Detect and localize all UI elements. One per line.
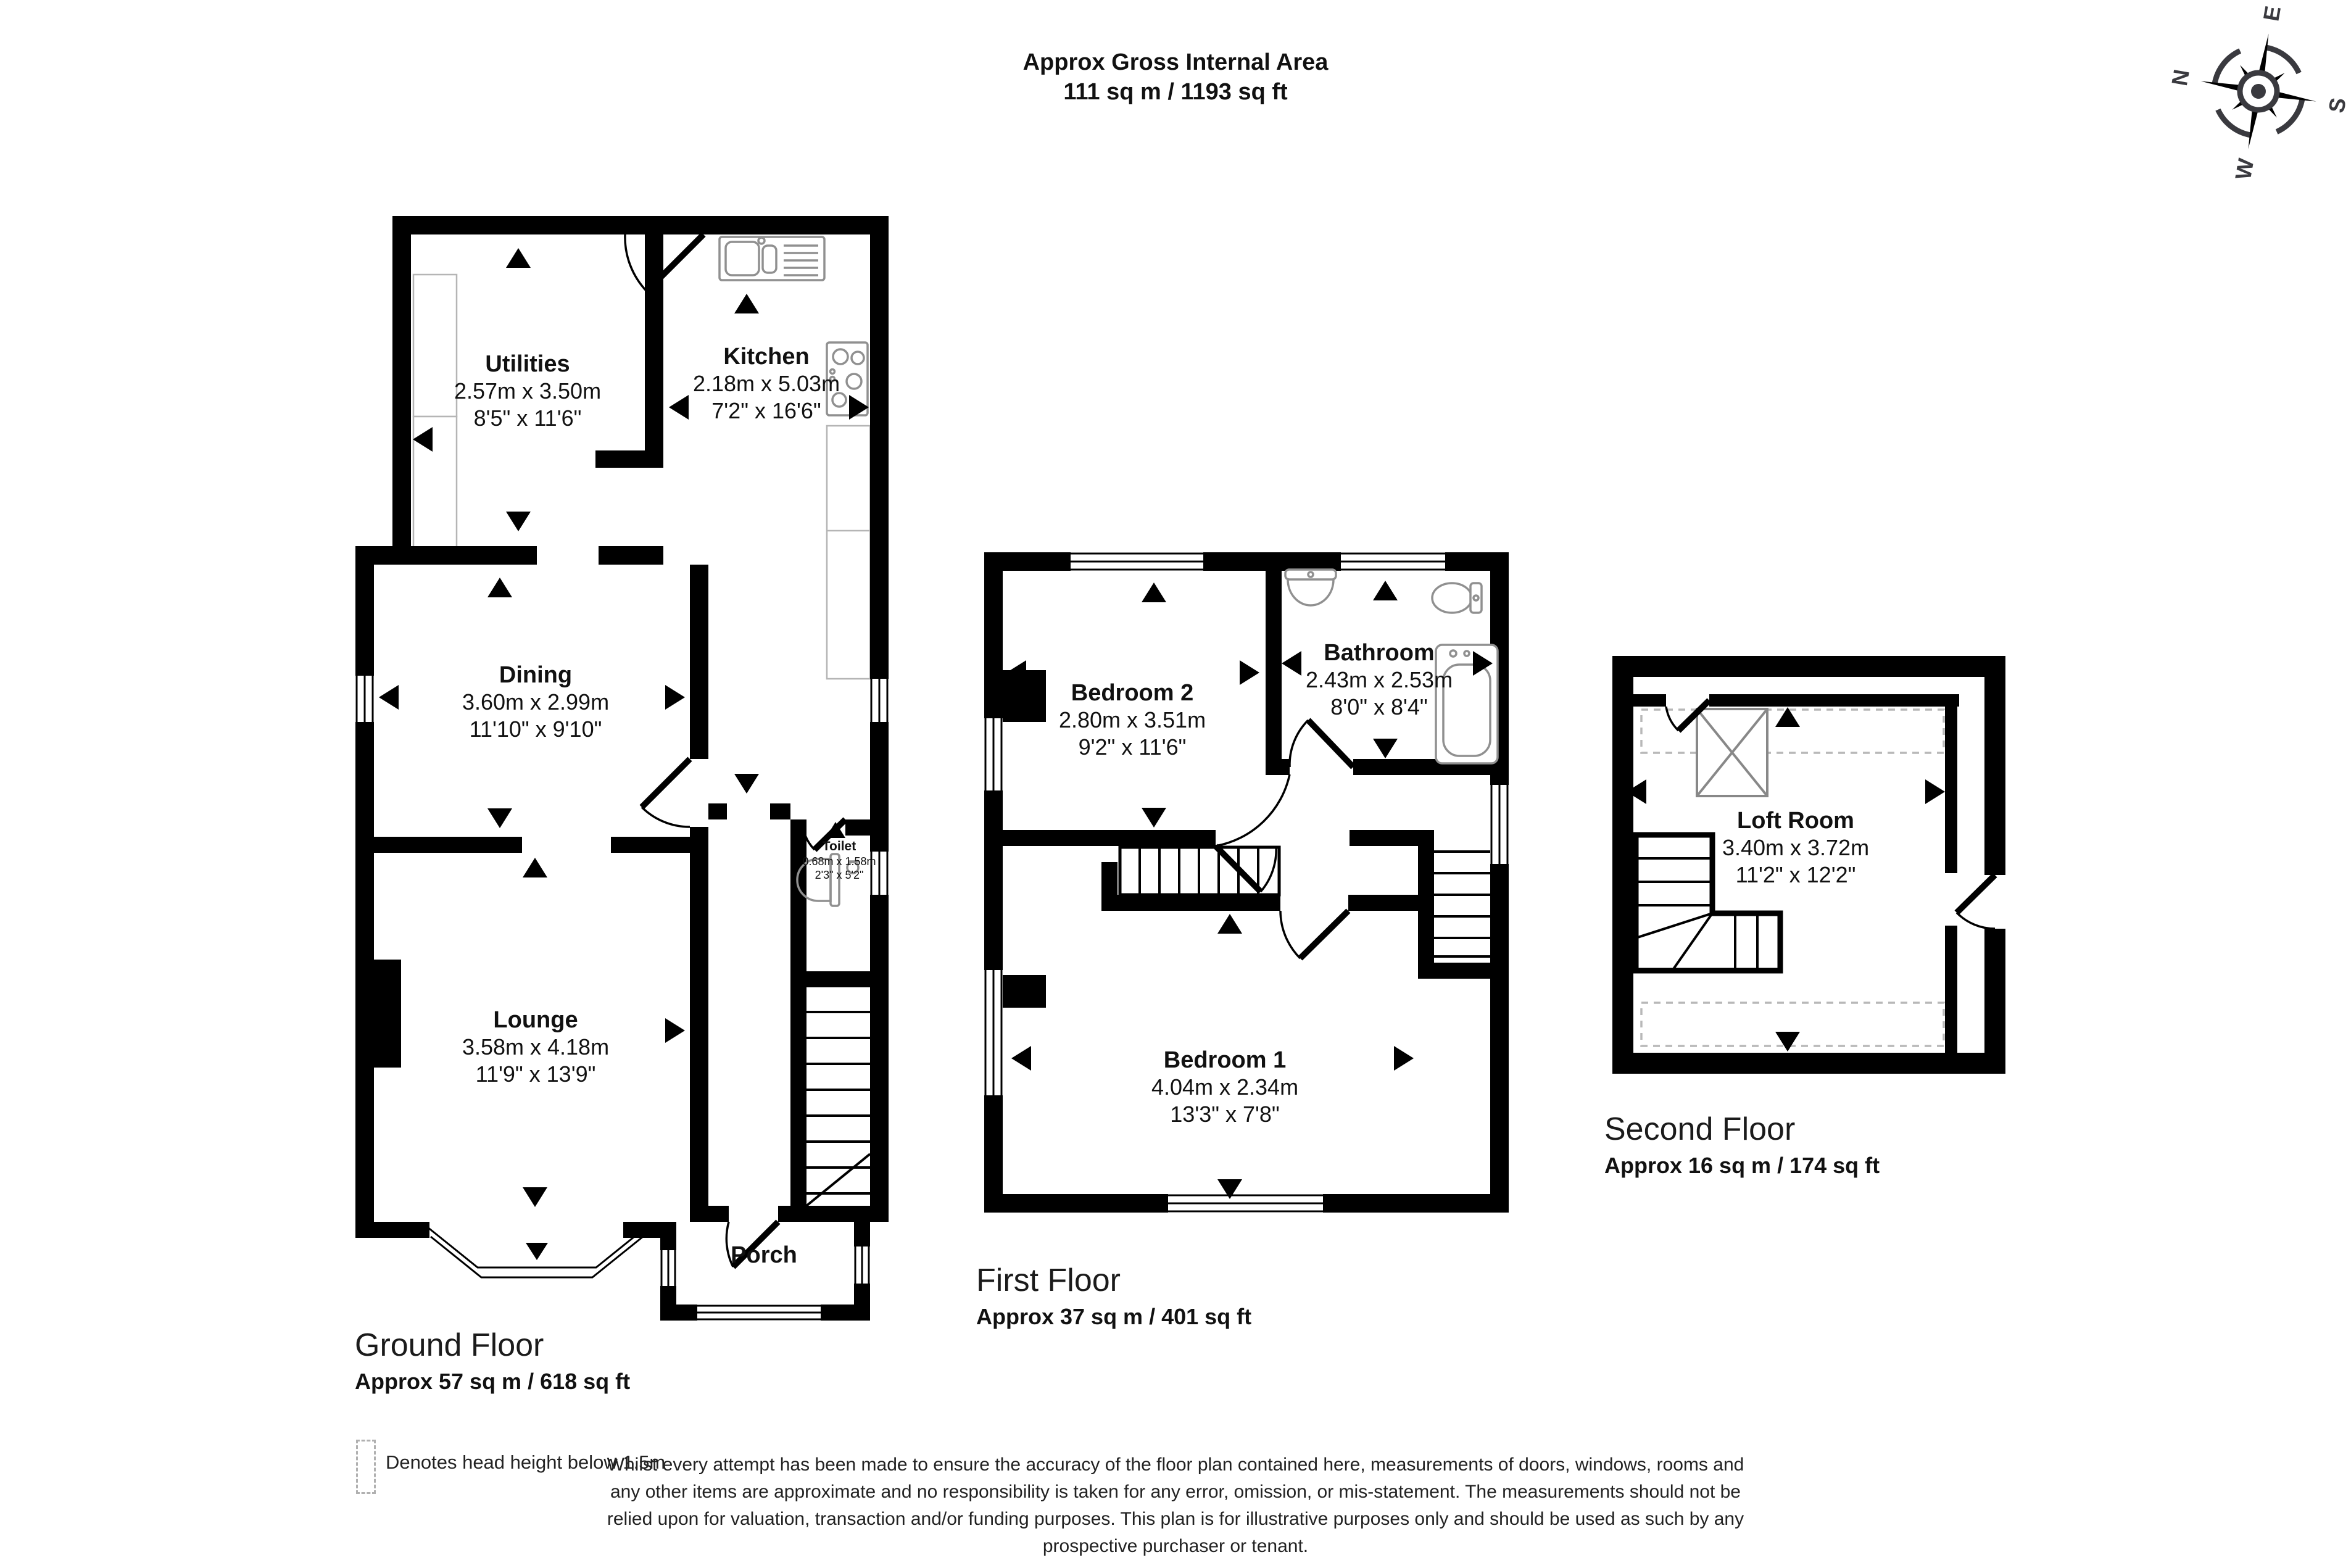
disclaimer-line-1: Whilst every attempt has been made to en… xyxy=(558,1451,1793,1479)
room-label-lounge: Lounge xyxy=(493,1007,578,1033)
bathroom-toilet-icon xyxy=(1432,583,1482,613)
room-imperial-bedroom1: 13'3" x 7'8" xyxy=(1170,1101,1279,1127)
room-imperial-loft: 11'2" x 12'2" xyxy=(1736,862,1856,887)
page-title: Approx Gross Internal Area xyxy=(867,49,1484,76)
room-metric-bedroom1: 4.04m x 2.34m xyxy=(1151,1074,1298,1100)
room-label-loft: Loft Room xyxy=(1737,808,1854,834)
room-label-utilities: Utilities xyxy=(485,351,570,377)
compass-n: N xyxy=(2166,67,2194,88)
room-imperial-lounge: 11'9" x 13'9" xyxy=(476,1061,596,1087)
ground-floor-stairs xyxy=(806,1012,870,1206)
ground-floor-plan: Utilities 2.57m x 3.50m 8'5" x 11'6" Kit… xyxy=(352,210,907,1327)
room-metric-toilet: 0.68m x 1.58m xyxy=(802,855,876,868)
room-metric-dining: 3.60m x 2.99m xyxy=(462,689,609,715)
room-metric-utilities: 2.57m x 3.50m xyxy=(454,378,601,404)
room-imperial-utilities: 8'5" x 11'6" xyxy=(474,405,582,431)
second-floor-area: Approx 16 sq m / 174 sq ft xyxy=(1604,1153,1880,1179)
room-metric-bedroom2: 2.80m x 3.51m xyxy=(1059,707,1206,732)
compass-rose-icon: N E S W xyxy=(2160,0,2351,190)
room-label-toilet: Toilet xyxy=(823,839,856,853)
disclaimer-line-2: any other items are approximate and no r… xyxy=(558,1479,1793,1506)
head-height-legend-icon xyxy=(356,1440,376,1494)
page-subtitle: 111 sq m / 1193 sq ft xyxy=(867,79,1484,106)
room-imperial-bathroom: 8'0" x 8'4" xyxy=(1330,694,1427,720)
compass-e: E xyxy=(2258,4,2286,23)
bathroom-sink-icon xyxy=(1285,570,1336,605)
compass-w: W xyxy=(2230,157,2258,182)
room-imperial-kitchen: 7'2" x 16'6" xyxy=(711,398,821,423)
room-imperial-dining: 11'10" x 9'10" xyxy=(470,716,602,742)
room-metric-bathroom: 2.43m x 2.53m xyxy=(1306,667,1453,692)
skylight-icon xyxy=(1697,709,1767,796)
disclaimer-line-4: prospective purchaser or tenant. xyxy=(558,1533,1793,1560)
utilities-counter xyxy=(413,275,457,555)
room-label-kitchen: Kitchen xyxy=(723,344,809,370)
first-floor-area: Approx 37 sq m / 401 sq ft xyxy=(976,1304,1251,1330)
compass-s: S xyxy=(2323,96,2351,115)
room-metric-kitchen: 2.18m x 5.03m xyxy=(693,371,840,396)
room-label-bedroom2: Bedroom 2 xyxy=(1071,680,1193,706)
room-imperial-bedroom2: 9'2" x 11'6" xyxy=(1079,734,1187,760)
first-floor-plan: Bedroom 2 2.80m x 3.51m 9'2" x 11'6" Bat… xyxy=(978,546,1521,1225)
floorplan-page: Approx Gross Internal Area 111 sq m / 11… xyxy=(0,0,2351,1568)
room-label-bathroom: Bathroom xyxy=(1324,640,1434,666)
ground-floor-label: Ground Floor xyxy=(355,1327,544,1364)
second-floor-label: Second Floor xyxy=(1604,1111,1795,1148)
kitchen-sink-icon xyxy=(719,237,824,280)
disclaimer-line-3: relied upon for valuation, transaction a… xyxy=(558,1506,1793,1533)
disclaimer: Whilst every attempt has been made to en… xyxy=(558,1451,1793,1560)
room-metric-lounge: 3.58m x 4.18m xyxy=(462,1034,609,1060)
room-label-bedroom1: Bedroom 1 xyxy=(1164,1047,1286,1073)
room-label-dining: Dining xyxy=(499,662,572,688)
first-floor-doors xyxy=(1216,720,1353,958)
room-label-porch: Porch xyxy=(731,1242,797,1268)
kitchen-counter xyxy=(827,426,870,679)
first-floor-label: First Floor xyxy=(976,1262,1121,1299)
room-metric-loft: 3.40m x 3.72m xyxy=(1722,835,1869,860)
ground-floor-area: Approx 57 sq m / 618 sq ft xyxy=(355,1369,630,1395)
second-floor-plan: Loft Room 3.40m x 3.72m 11'2" x 12'2" xyxy=(1604,648,2012,1080)
room-imperial-toilet: 2'3" x 5'2" xyxy=(815,869,864,881)
